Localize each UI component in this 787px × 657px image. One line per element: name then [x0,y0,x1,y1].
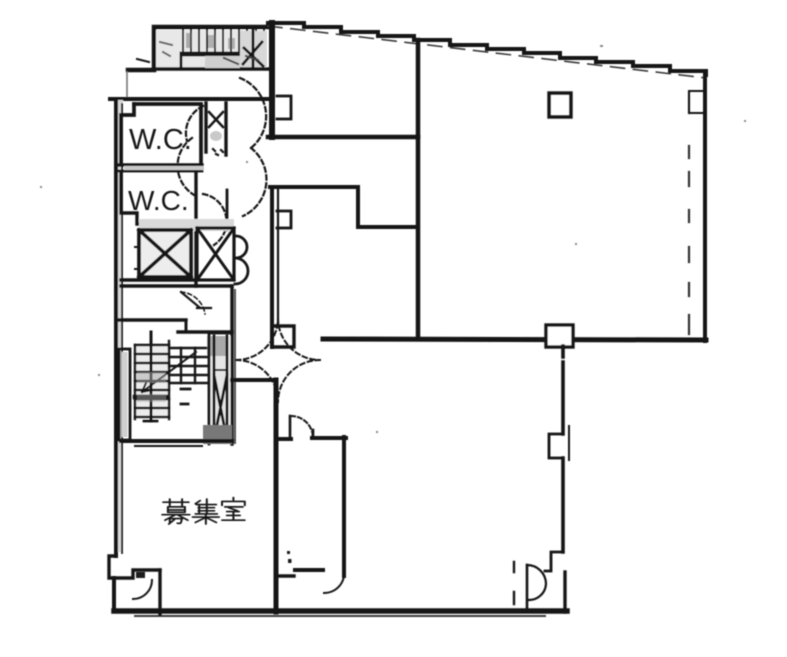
svg-text:W.C.: W.C. [128,185,189,216]
svg-text:W.C.: W.C. [129,124,192,156]
